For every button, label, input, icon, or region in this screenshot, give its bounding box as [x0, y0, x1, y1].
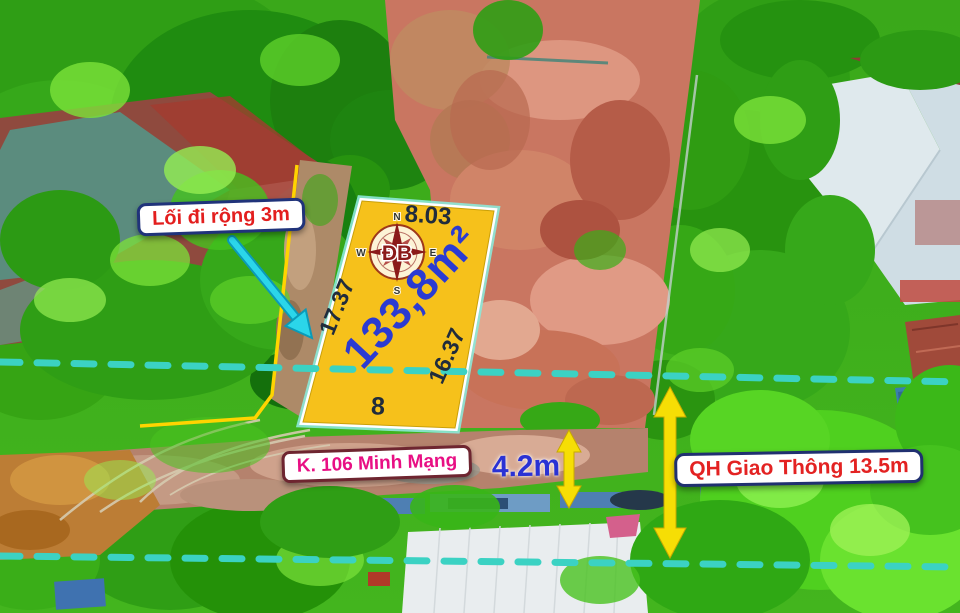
planning-label: QH Giao Thông 13.5m: [689, 454, 909, 482]
planning-callout: QH Giao Thông 13.5m: [674, 449, 924, 487]
pink-tent: [606, 514, 640, 538]
street-label: K. 106 Minh Mạng: [296, 450, 457, 478]
road-width-value: 4.2m: [492, 449, 561, 484]
path-width-label: Lối đi rộng 3m: [152, 203, 291, 231]
plot-dimension-bottom: 8: [371, 392, 386, 421]
compass-west-label: W: [356, 248, 366, 259]
compass-north-label: N: [393, 212, 400, 223]
aerial-photo-background: ĐB N E S W: [0, 0, 960, 613]
blue-tarp: [54, 578, 106, 609]
path-width-callout: Lối đi rộng 3m: [137, 198, 306, 237]
red-bricks: [368, 572, 390, 586]
real-estate-aerial-listing: ĐB N E S W Lối đi rộng 3m 8.03 17.37 16.…: [0, 0, 960, 613]
street-callout: K. 106 Minh Mạng: [281, 445, 472, 484]
